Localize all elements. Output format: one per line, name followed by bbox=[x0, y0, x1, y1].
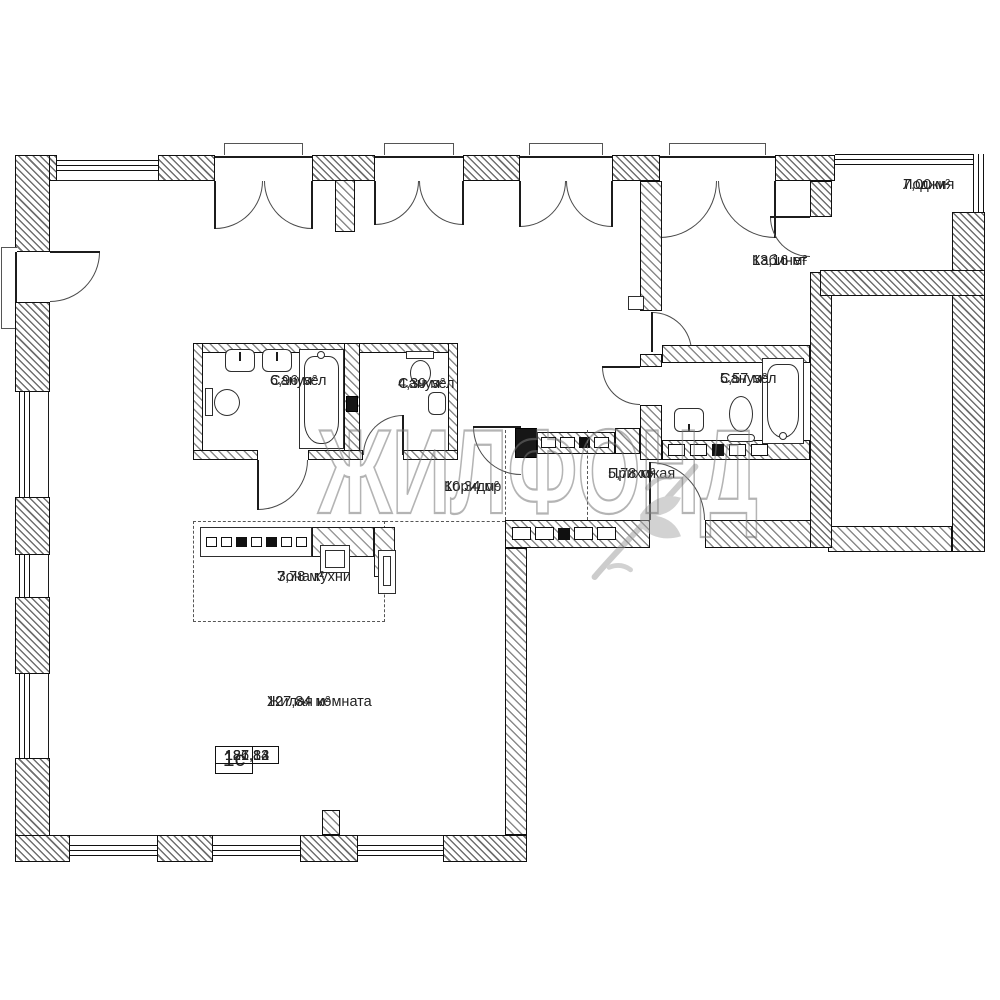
wall bbox=[828, 526, 952, 552]
room-area: 13,16 м² bbox=[752, 248, 807, 276]
toilet-tank bbox=[205, 388, 213, 416]
loggia-glazing bbox=[835, 154, 975, 165]
sink-tap bbox=[276, 352, 278, 361]
door-leaf bbox=[462, 181, 464, 225]
wall-line bbox=[57, 180, 158, 181]
wall-line bbox=[48, 674, 49, 758]
wall bbox=[193, 343, 203, 460]
kitchen-appliance-handle bbox=[383, 556, 391, 586]
door-arc bbox=[718, 181, 775, 238]
door-leaf bbox=[374, 181, 376, 225]
balcony-rail bbox=[384, 143, 454, 155]
wall-pier bbox=[312, 155, 375, 181]
counter-cell bbox=[221, 537, 232, 547]
window bbox=[358, 845, 443, 856]
door-arc bbox=[419, 181, 463, 225]
bathtub-drain bbox=[779, 432, 787, 440]
wall-box bbox=[628, 296, 644, 310]
window bbox=[19, 392, 30, 497]
wall-stub bbox=[322, 810, 340, 835]
room-area: 7,78 м² bbox=[277, 564, 324, 592]
toilet-bowl bbox=[214, 389, 240, 416]
wall-line bbox=[358, 835, 443, 836]
counter-cell bbox=[251, 537, 262, 547]
area-total: 186,13 bbox=[215, 746, 279, 764]
door-threshold bbox=[660, 156, 775, 158]
counter-cell bbox=[266, 537, 277, 547]
door-leaf bbox=[770, 216, 810, 218]
counter-cell bbox=[281, 537, 292, 547]
wall-pier bbox=[443, 835, 527, 862]
bathtub-drain bbox=[317, 351, 325, 359]
wall bbox=[810, 272, 832, 548]
room-area: 6,96 м² bbox=[270, 368, 317, 396]
wall-pier bbox=[15, 302, 50, 392]
door-leaf bbox=[50, 251, 100, 253]
door-threshold bbox=[15, 252, 17, 302]
counter-cell bbox=[206, 537, 217, 547]
door-leaf bbox=[214, 181, 216, 229]
door-arc bbox=[215, 181, 263, 229]
wall-pier bbox=[158, 155, 215, 181]
wall-pier bbox=[463, 155, 520, 181]
wall bbox=[193, 450, 258, 460]
window bbox=[19, 674, 30, 758]
door-leaf bbox=[519, 181, 521, 227]
wall-pier bbox=[15, 835, 70, 862]
counter-cell bbox=[296, 537, 307, 547]
door-threshold bbox=[215, 156, 312, 158]
wall-pier bbox=[157, 835, 213, 862]
door-arc bbox=[520, 181, 566, 227]
door-arc bbox=[50, 252, 100, 302]
wall-stub bbox=[335, 180, 355, 232]
door-arc bbox=[375, 181, 419, 225]
window bbox=[213, 845, 300, 856]
door-arc bbox=[264, 181, 312, 229]
toilet-tank bbox=[406, 351, 434, 359]
wall bbox=[952, 212, 985, 552]
door-arc bbox=[602, 367, 640, 405]
wall-pier bbox=[15, 497, 50, 555]
room-area: 5,57 м² bbox=[720, 366, 767, 394]
wall-pier bbox=[15, 597, 50, 674]
door-leaf bbox=[311, 181, 313, 229]
door-arc bbox=[258, 460, 308, 510]
wall bbox=[505, 548, 527, 835]
wall-pier bbox=[15, 155, 50, 252]
counter-cell bbox=[236, 537, 247, 547]
balcony-rail bbox=[529, 143, 603, 155]
window bbox=[19, 555, 30, 597]
floor-plan: Лоджия 7,00 м² Кабинет 13,16 м² Санузел … bbox=[0, 0, 1000, 1000]
door-threshold bbox=[375, 156, 463, 158]
agency-watermark: ЖИЛФОНД bbox=[318, 412, 758, 532]
wall-pier bbox=[612, 155, 660, 181]
wall bbox=[810, 181, 832, 217]
wall bbox=[820, 270, 985, 296]
door-leaf bbox=[257, 460, 259, 510]
wall-line bbox=[70, 835, 157, 836]
wall-line bbox=[48, 555, 49, 597]
wall-pier bbox=[775, 155, 835, 181]
window bbox=[57, 160, 158, 171]
wall-line bbox=[48, 392, 49, 497]
door-leaf bbox=[651, 312, 653, 352]
balcony-rail bbox=[224, 143, 303, 155]
window bbox=[70, 845, 157, 856]
loggia-glazing bbox=[973, 154, 984, 214]
door-leaf bbox=[602, 366, 640, 368]
wall-line bbox=[213, 835, 300, 836]
door-arc bbox=[566, 181, 612, 227]
door-arc bbox=[660, 181, 717, 238]
sink-tap bbox=[239, 352, 241, 361]
balcony-rail bbox=[669, 143, 766, 155]
wall-pier bbox=[300, 835, 358, 862]
door-threshold bbox=[520, 156, 612, 158]
room-area: 4,39 м² bbox=[398, 371, 445, 399]
room-area: 127,84 м² bbox=[267, 689, 330, 717]
wall bbox=[640, 181, 662, 311]
door-leaf bbox=[611, 181, 613, 227]
wall bbox=[640, 354, 662, 367]
room-area: 7,00 м² bbox=[903, 172, 950, 200]
